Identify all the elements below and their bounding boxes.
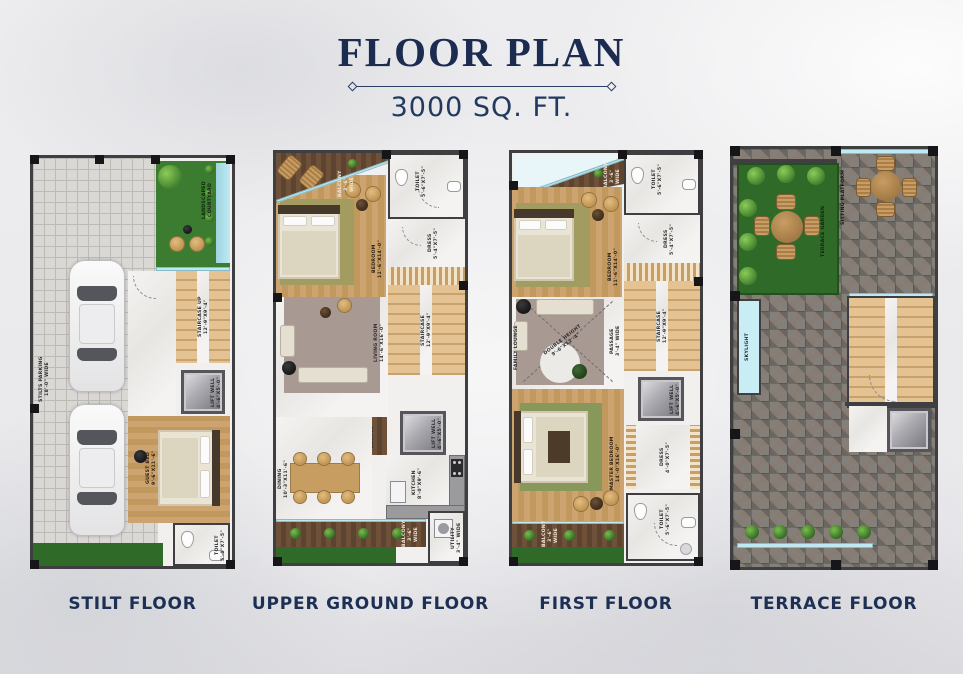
courtyard-tree xyxy=(158,165,182,189)
pillow xyxy=(523,449,533,475)
pillow xyxy=(545,220,567,230)
car-windshield xyxy=(77,430,117,445)
courtyard-bush xyxy=(205,237,214,246)
pillar xyxy=(95,155,104,164)
courtyard-table xyxy=(183,225,192,234)
ff-passage-label: PASSAGE3'-4" WIDE xyxy=(610,319,622,363)
stilt-guest-bedroom: GUEST BED9'-6"X11'-6" xyxy=(128,416,230,523)
ff-balcony-bottom xyxy=(512,521,624,549)
ff-master-bedroom: MASTER BEDROOM14'-0"X16'-0" xyxy=(512,389,624,521)
ff-balcony-bottom-label: BALCONY3'-6" WIDE xyxy=(542,523,560,547)
balcony-plant xyxy=(290,528,301,539)
pillar xyxy=(30,404,39,413)
ug-lift-well: LIFT WELL4'-6"X5'-0" xyxy=(400,411,446,455)
round-chair xyxy=(582,193,596,207)
garden-tree xyxy=(807,167,825,185)
balcony-plant xyxy=(564,530,575,541)
kitchen-stove xyxy=(451,459,463,477)
floor-plan-flyer: FLOOR PLAN 3000 SQ. FT. LANDSCAPEDCOURTY… xyxy=(0,0,963,674)
ff-stair-flight xyxy=(624,263,700,281)
garden-chair xyxy=(777,245,795,259)
round-table xyxy=(320,307,331,318)
terrace-garden: TERRACE GARDEN xyxy=(739,165,837,293)
pillar xyxy=(459,150,468,159)
coffee-table xyxy=(282,361,296,375)
ff-master-bedroom-label: MASTER BEDROOM14'-0"X16'-0" xyxy=(610,433,622,493)
pillow xyxy=(283,216,307,226)
terrace-plant xyxy=(829,525,843,539)
armchair xyxy=(280,325,295,357)
pillar xyxy=(730,560,740,570)
burner xyxy=(453,472,456,475)
ug-green-strip xyxy=(276,547,396,563)
bed-throw xyxy=(548,431,570,463)
dining-chair xyxy=(318,453,330,465)
ff-dress-top: DRESS5'-4"X7'-5" xyxy=(624,215,700,263)
pillar xyxy=(30,155,39,164)
upper-ground-caption: UPPER GROUND FLOOR xyxy=(248,594,493,614)
ff-balcony-label: BALCONY3'-6" WIDE xyxy=(604,163,622,189)
pillow xyxy=(200,436,210,464)
pillar xyxy=(928,146,938,156)
stilt-front-lawn xyxy=(33,543,163,566)
stilt-courtyard: LANDSCAPEDCOURTYARD xyxy=(156,161,230,267)
terrace-plant xyxy=(857,525,871,539)
ug-kitchen-label: KITCHEN8'-0"X9'-6" xyxy=(412,463,424,503)
coffee-table xyxy=(516,299,531,314)
dining-chair xyxy=(318,491,330,503)
car-windshield xyxy=(77,286,117,301)
balcony-plant xyxy=(348,159,357,168)
pillar xyxy=(730,146,740,156)
guest-bed-label: GUEST BED9'-6"X11'-6" xyxy=(146,440,158,496)
courtyard-bush xyxy=(205,165,214,174)
stilt-floor-plan: LANDSCAPEDCOURTYARD STAIRCASE UP12'-9"X9… xyxy=(33,158,232,566)
dining-table xyxy=(290,463,360,493)
pillar xyxy=(273,557,282,566)
lounge-sofa xyxy=(536,299,594,315)
pillar xyxy=(694,557,703,566)
ug-living-label: LIVING ROOM14'-6"X16'-0" xyxy=(374,315,386,371)
pillar xyxy=(730,291,740,301)
washer-drum xyxy=(438,523,449,534)
burner xyxy=(458,472,461,475)
pillar xyxy=(928,560,938,570)
ff-family-lounge: FAMILY LOUNGE DOUBLE HEIGHT9'-6"X12'-4" … xyxy=(512,297,624,389)
pillar xyxy=(30,560,39,569)
first-floor-plan: BALCONY3'-6" WIDE BEDROOM11'-6"X14'-0" T… xyxy=(512,153,700,563)
round-chair xyxy=(366,187,380,201)
guest-bed xyxy=(158,430,220,506)
ff-lift-label: LIFT WELL4'-6"X5'-0" xyxy=(670,381,682,417)
pillar xyxy=(509,557,518,566)
ff-dress-bottom: DRESS4'-0"X7'-5" xyxy=(626,425,700,489)
wall-segment xyxy=(845,402,935,406)
round-table xyxy=(356,199,368,211)
stilt-toilet: TOILET5'-0"X7'-5" xyxy=(173,523,230,566)
door-arc xyxy=(638,223,657,242)
dining-chair xyxy=(342,491,354,503)
ff-staircase: STAIRCASE12'-9"X9'-4" xyxy=(624,281,700,371)
car xyxy=(69,404,125,536)
pillar xyxy=(273,293,282,302)
ug-lift-label: LIFT WELL4'-6"X5'-0" xyxy=(432,415,444,451)
car-rear-window xyxy=(77,492,117,505)
bed-headboard xyxy=(514,411,521,483)
courtyard-pool xyxy=(216,163,230,263)
pillow xyxy=(519,220,541,230)
sofa xyxy=(298,367,368,383)
dining-chair xyxy=(294,453,306,465)
ug-dining-label: DINING10'-3"X11'-6" xyxy=(278,455,290,503)
lounge-plant xyxy=(572,364,587,379)
sitting-chair xyxy=(857,179,870,196)
toilet-wc xyxy=(634,503,647,520)
lounge-chair xyxy=(277,155,302,181)
ff-toilet-top-label: TOILET5'-6"X7'-5" xyxy=(652,161,664,197)
pillar xyxy=(618,150,627,159)
garden-chair xyxy=(805,217,819,235)
pillar xyxy=(694,150,703,159)
terrace-plant xyxy=(745,525,759,539)
ug-balcony-label: BALCONY3'-6" WIDE xyxy=(338,169,356,199)
page-subtitle: 3000 SQ. FT. xyxy=(0,92,963,123)
stilt-toilet-label: TOILET5'-0"X7'-5" xyxy=(215,528,227,562)
car-roof xyxy=(79,304,115,344)
pillow xyxy=(311,216,335,226)
courtyard-chair xyxy=(190,237,204,251)
burner xyxy=(453,461,456,464)
bed-blanket xyxy=(518,235,570,277)
guest-bed-blanket xyxy=(162,438,198,498)
sitting-chair xyxy=(903,179,916,196)
pillow xyxy=(523,417,533,443)
pillar xyxy=(730,429,740,439)
round-chair xyxy=(604,197,618,211)
bed-headboard xyxy=(514,209,574,218)
balcony-plant xyxy=(324,528,335,539)
pillar xyxy=(382,150,391,159)
stilt-lift-well: LIFT WELL4'-6"X5'-0" xyxy=(181,370,225,414)
balcony-plant xyxy=(358,528,369,539)
balcony-plant xyxy=(604,530,615,541)
guest-bed-headboard xyxy=(212,430,220,506)
bed-headboard xyxy=(278,205,340,214)
pillar xyxy=(226,155,235,164)
ug-balcony-bottom-label: BALCONY3'-6" WIDE xyxy=(402,521,420,547)
sitting-table xyxy=(871,171,901,201)
garden-tree xyxy=(739,199,757,217)
toilet-wc xyxy=(181,531,194,548)
stilt-floor-caption: STILT FLOOR xyxy=(33,594,232,614)
ug-dress: DRESS5'-4"X7'-5" xyxy=(388,219,465,267)
stilt-lift-label: LIFT WELL4'-6"X5'-0" xyxy=(211,374,223,410)
ug-bed xyxy=(278,205,340,279)
kitchen-sink xyxy=(390,481,406,503)
toilet-basin xyxy=(681,517,696,528)
round-table xyxy=(590,497,603,510)
ff-bedroom-label: BEDROOM11'-6"X14'-0" xyxy=(608,239,620,295)
toilet-wc xyxy=(631,167,644,184)
terrace-staircase xyxy=(849,298,933,406)
balcony-glass xyxy=(512,521,624,524)
ug-staircase-label: STAIRCASE12'-9"X9'-4" xyxy=(421,297,433,363)
upper-ground-floor-plan: BEDROOM11'-6"X14'-0" BALCONY3'-6" WIDE T… xyxy=(276,153,465,563)
ug-toilet-label: TOILET5'-6"X7'-5" xyxy=(416,163,428,199)
ff-staircase-label: STAIRCASE12'-9"X9'-4" xyxy=(657,293,669,359)
ug-bedroom-label: BEDROOM11'-6"X14'-0" xyxy=(372,231,384,287)
ug-utility: UTILITY3'-4" WIDE xyxy=(428,511,465,563)
terrace-lift-well xyxy=(887,408,931,452)
garden-chair xyxy=(755,217,769,235)
pillar xyxy=(694,277,703,286)
skylight-label: SKYLIGHT xyxy=(745,317,751,377)
ug-dining: DINING10'-3"X11'-6" xyxy=(276,417,372,519)
door-arc xyxy=(402,227,421,246)
car-rear-window xyxy=(77,348,117,361)
ff-bed xyxy=(514,209,574,281)
pillow xyxy=(200,470,210,498)
pillar xyxy=(831,560,841,570)
garden-tree xyxy=(747,167,765,185)
ff-toilet-top: TOILET5'-6"X7'-5" xyxy=(624,153,700,215)
garden-tree xyxy=(739,267,757,285)
dining-chair xyxy=(294,491,306,503)
ff-dress-bottom-label: DRESS4'-0"X7'-5" xyxy=(660,437,672,477)
car xyxy=(69,260,125,392)
ff-family-lounge-label: FAMILY LOUNGE xyxy=(514,323,520,373)
bed-blanket xyxy=(282,231,336,275)
sitting-platform-label: SITTING PLATFORM xyxy=(841,163,847,231)
ff-dress-top-label: DRESS5'-4"X7'-5" xyxy=(664,221,676,257)
ff-lift-well: LIFT WELL4'-6"X5'-0" xyxy=(638,377,684,421)
pillar xyxy=(459,281,468,290)
ff-toilet-bottom: TOILET5'-6"X7'-5" xyxy=(626,493,700,561)
garden-tree xyxy=(739,233,757,251)
courtyard-chair xyxy=(170,237,184,251)
terrace-plant xyxy=(773,525,787,539)
garden-chair xyxy=(777,195,795,209)
round-chair xyxy=(338,299,351,312)
toilet-basin xyxy=(447,181,461,192)
toilet-wc xyxy=(395,169,408,186)
pillar xyxy=(831,146,841,156)
pillar xyxy=(509,181,518,190)
divider-diamond-right xyxy=(607,82,617,92)
terrace-garden-label: TERRACE GARDEN xyxy=(821,199,827,263)
pillar xyxy=(151,155,160,164)
round-table xyxy=(592,209,604,221)
ug-kitchen: KITCHEN8'-0"X9'-6" xyxy=(386,455,465,519)
round-chair xyxy=(604,491,618,505)
pillar xyxy=(226,560,235,569)
ug-utility-label: UTILITY3'-4" WIDE xyxy=(451,519,463,557)
burner xyxy=(458,461,461,464)
garden-tree xyxy=(777,165,795,183)
toilet-stool xyxy=(680,543,692,555)
toilet-basin xyxy=(682,179,696,190)
pillar xyxy=(459,557,468,566)
ff-bedroom: BEDROOM11'-6"X14'-0" xyxy=(512,187,622,297)
ff-toilet-bottom-label: TOILET5'-6"X7'-5" xyxy=(660,501,672,537)
balcony-plant xyxy=(524,530,535,541)
page-title: FLOOR PLAN xyxy=(0,28,963,76)
sitting-chair xyxy=(877,157,894,170)
terrace-lift-lobby xyxy=(849,406,887,452)
terrace-floor-caption: TERRACE FLOOR xyxy=(733,594,935,614)
stilt-parking-label: STILTS PARKING18'-0" WIDE xyxy=(39,348,51,410)
garden-table xyxy=(771,211,803,243)
terrace-floor-plan: TERRACE GARDEN SITTING PLATFORM SKYLIGHT xyxy=(733,149,935,567)
ug-living-room: LIVING ROOM14'-6"X16'-0" xyxy=(276,297,388,417)
terrace-bottom-glass xyxy=(737,543,873,548)
stilt-staircase-label: STAIRCASE UP12'-9"X9'-4" xyxy=(198,281,210,353)
round-chair xyxy=(574,497,588,511)
divider-diamond-left xyxy=(348,82,358,92)
master-bed xyxy=(514,411,588,483)
terrace-skylight: SKYLIGHT xyxy=(737,299,761,395)
ug-staircase: STAIRCASE12'-9"X9'-4" xyxy=(388,285,465,375)
terrace-top-glass xyxy=(837,149,935,154)
title-divider xyxy=(357,86,607,87)
ff-green-strip xyxy=(512,547,624,563)
terrace-plant xyxy=(801,525,815,539)
ug-dress-label: DRESS5'-4"X7'-5" xyxy=(428,225,440,261)
dining-chair xyxy=(342,453,354,465)
first-floor-caption: FIRST FLOOR xyxy=(512,594,700,614)
wardrobe xyxy=(690,425,700,489)
ug-stair-flight xyxy=(388,267,465,285)
ug-toilet: TOILET5'-6"X7'-5" xyxy=(388,153,465,219)
stair-arc xyxy=(869,375,896,402)
wardrobe xyxy=(626,425,636,489)
courtyard-label: LANDSCAPEDCOURTYARD xyxy=(202,175,214,225)
car-roof xyxy=(79,448,115,488)
sitting-chair xyxy=(877,203,894,216)
stilt-staircase: STAIRCASE UP12'-9"X9'-4" xyxy=(176,271,230,363)
